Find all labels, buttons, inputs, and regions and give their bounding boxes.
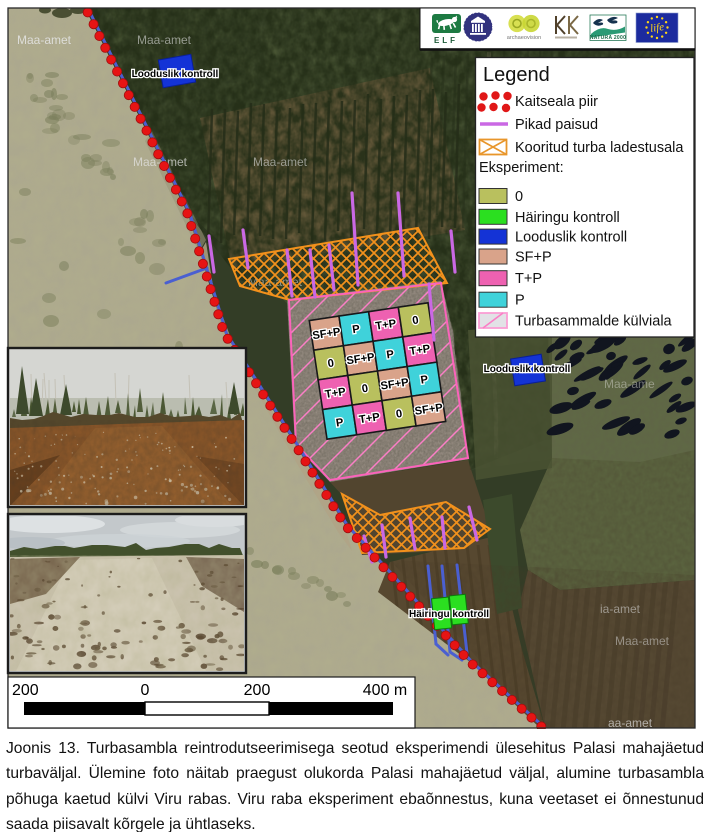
svg-text:ia-amet: ia-amet	[600, 602, 641, 616]
svg-text:P: P	[515, 293, 525, 309]
svg-text:Maa-amet: Maa-amet	[17, 33, 72, 47]
svg-text:Pikad paisud: Pikad paisud	[515, 117, 598, 133]
svg-text:Kooritud turba ladestusala: Kooritud turba ladestusala	[515, 140, 684, 156]
svg-text:Turbasammalde külviala: Turbasammalde külviala	[515, 314, 673, 330]
svg-text:T+P: T+P	[515, 271, 542, 287]
svg-text:Häiringu kontroll: Häiringu kontroll	[515, 210, 620, 226]
svg-text:Looduslik kontroll: Looduslik kontroll	[132, 69, 219, 80]
svg-text:Maa-amet: Maa-amet	[253, 155, 308, 169]
svg-text:Eksperiment:: Eksperiment:	[479, 160, 564, 176]
svg-text:Maa-amet: Maa-amet	[615, 634, 670, 648]
svg-text:ELF: ELF	[434, 36, 458, 45]
svg-text:400 m: 400 m	[363, 682, 407, 699]
svg-text:200: 200	[12, 682, 39, 699]
svg-text:Legend: Legend	[483, 64, 550, 86]
svg-text:Maa-amet: Maa-amet	[137, 33, 192, 47]
svg-text:Looduslik kontroll: Looduslik kontroll	[484, 364, 571, 375]
svg-text:archaeovision: archaeovision	[507, 35, 542, 41]
svg-text:life: life	[649, 21, 665, 35]
svg-text:Kaitseala piir: Kaitseala piir	[515, 94, 598, 110]
svg-text:0: 0	[515, 189, 523, 205]
svg-text:NATURA 2000: NATURA 2000	[590, 35, 626, 41]
svg-text:SF+P: SF+P	[515, 250, 552, 266]
svg-text:Looduslik kontroll: Looduslik kontroll	[515, 230, 627, 246]
svg-text:200: 200	[244, 682, 271, 699]
svg-text:Maa-ame: Maa-ame	[604, 377, 655, 391]
svg-text:0: 0	[141, 682, 150, 699]
svg-text:Häiringu kontroll: Häiringu kontroll	[409, 609, 489, 620]
